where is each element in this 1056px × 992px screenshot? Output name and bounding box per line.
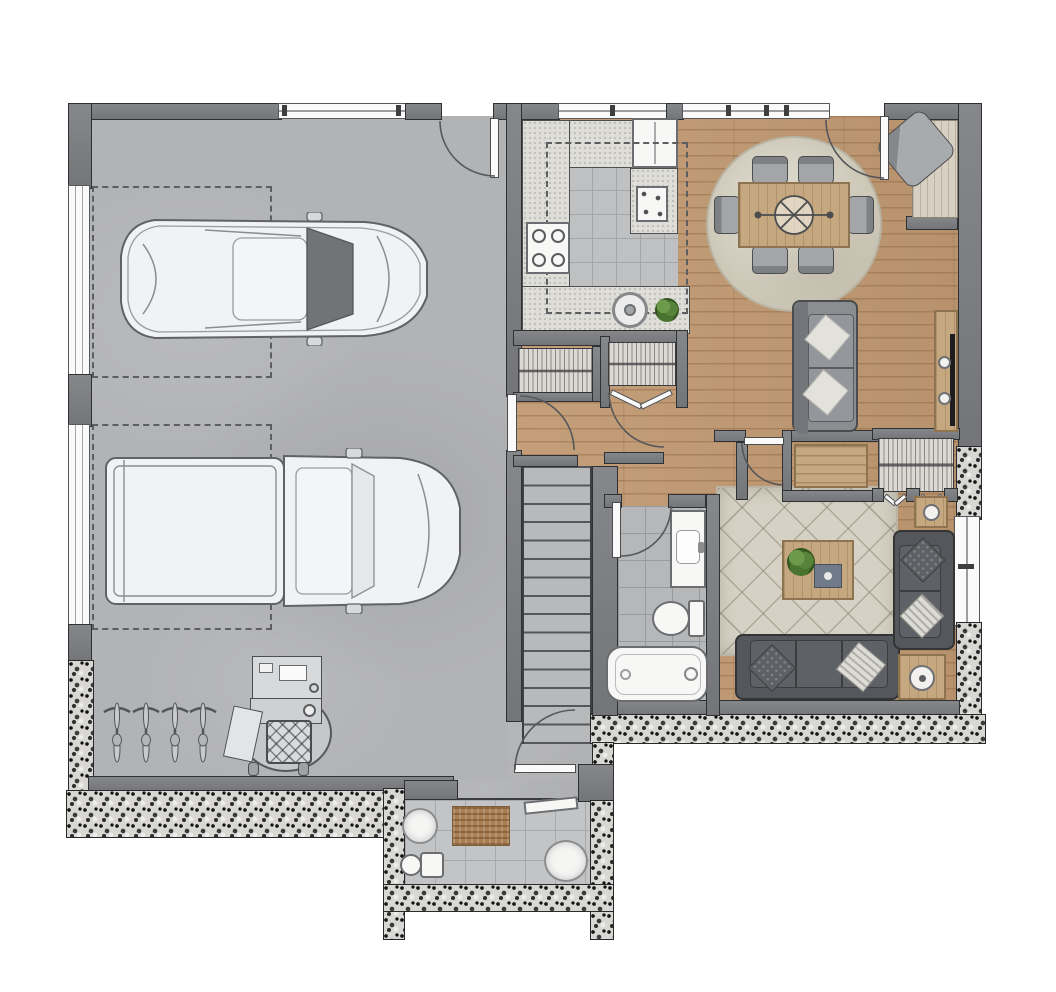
garage-bottom-stone-wall — [66, 790, 404, 838]
bottom-stone-wall — [590, 714, 986, 744]
panel-knob — [309, 683, 319, 693]
burner — [551, 253, 565, 267]
niche-dresser — [794, 444, 868, 488]
porch-bottom-stone-wall — [383, 884, 614, 912]
burner — [532, 253, 546, 267]
toilet-tank — [688, 600, 705, 637]
wardrobe-stub-1 — [872, 488, 884, 502]
bathtub-drain — [620, 669, 631, 680]
table-lamp-lower — [909, 665, 935, 691]
living-doorway-wall — [714, 430, 746, 442]
coat-closet — [518, 348, 594, 394]
porch-chair — [400, 850, 448, 882]
tv-sofa — [792, 300, 858, 432]
wall-oven — [636, 186, 668, 222]
tv-sofa-cushion-divider — [809, 367, 853, 369]
pantry-closet — [608, 342, 676, 386]
vanity-sink — [676, 530, 700, 564]
vanity-faucet — [698, 542, 704, 553]
dining-chair-west — [714, 196, 740, 234]
pantry-right-wall — [676, 330, 688, 408]
porch-chair-back — [400, 854, 422, 876]
coat-closet-bottom-wall — [513, 392, 602, 402]
staircase — [522, 466, 592, 744]
side-table-upper — [914, 496, 948, 528]
rear-entry-door-leaf — [880, 116, 889, 180]
living-sofa — [735, 634, 900, 700]
niche-bottom-wall — [782, 490, 880, 502]
tv-console — [934, 310, 958, 432]
parking-stall-outline-1 — [92, 186, 272, 378]
table-lamp-upper — [923, 504, 940, 521]
console-decor-2 — [938, 392, 951, 405]
bathroom-door-leaf — [612, 502, 621, 558]
wardrobe-closet — [878, 438, 954, 492]
porch-top-left-wall — [404, 780, 458, 800]
vanity — [670, 510, 706, 588]
left-wall-pier — [68, 374, 92, 427]
kitchen-sink — [612, 292, 648, 328]
burner — [532, 229, 546, 243]
garage-hall-door-leaf — [507, 394, 517, 452]
work-station — [228, 654, 334, 780]
top-wall-garage-right — [405, 103, 442, 120]
top-wall-kitchen-left — [493, 103, 560, 120]
floor-plan — [0, 0, 1056, 992]
left-wall-lower — [68, 624, 92, 662]
right-wall-upper — [958, 103, 982, 449]
nook-bottom-wall — [906, 216, 958, 230]
burner — [551, 229, 565, 243]
left-wall-upper — [68, 103, 92, 189]
top-wall-garage-left — [70, 103, 282, 120]
panel-detail — [279, 665, 307, 681]
hall-bottom-wall-left — [513, 455, 578, 467]
work-station-wheel — [248, 762, 259, 776]
coffee-table-tray — [814, 564, 842, 588]
bathroom-top-wall-right — [668, 494, 706, 508]
garage-house-divider-lower — [506, 450, 522, 722]
bathtub — [606, 646, 708, 702]
garage-door-2 — [68, 424, 90, 628]
dining-chair-south-1 — [752, 246, 788, 274]
dining-table — [738, 182, 850, 248]
garage-door-1 — [68, 185, 90, 378]
loveseat-cushion-divider — [900, 590, 940, 592]
tray-decor — [824, 572, 832, 580]
lamp-finial — [919, 675, 926, 682]
hall-bottom-wall-right — [604, 452, 664, 464]
right-wall-stone-upper — [956, 446, 982, 520]
living-room-window — [954, 516, 980, 626]
work-station-top-panel — [252, 656, 322, 700]
work-station-wheel — [298, 762, 309, 776]
living-room-door-leaf — [744, 437, 784, 445]
dining-chair-south-2 — [798, 246, 834, 274]
bathtub-faucet — [684, 667, 698, 681]
tv — [950, 334, 955, 426]
cooktop — [526, 222, 570, 274]
porch-corner-wall — [578, 764, 614, 802]
porch-right-stone-wall — [590, 800, 614, 940]
mid-knob — [303, 704, 316, 717]
kitchen-sink-basin — [624, 304, 636, 316]
hall-living-divider-wall — [736, 442, 748, 500]
sofa-cushion-divider — [795, 641, 797, 687]
doormat — [452, 806, 510, 846]
toilet-bowl — [652, 601, 690, 636]
parking-stall-outline-2 — [92, 424, 272, 630]
side-table-lower — [898, 654, 946, 700]
loveseat — [893, 530, 955, 650]
garage-side-door-leaf — [490, 118, 499, 178]
dining-chair-north-2 — [798, 156, 834, 184]
bathroom-right-wall — [706, 494, 720, 716]
dining-chair-north-1 — [752, 156, 788, 184]
kitchen-window — [558, 103, 668, 119]
left-wall-stone — [68, 660, 94, 794]
garage-window — [278, 103, 408, 119]
coffee-table-plant — [787, 548, 815, 576]
dining-window — [682, 103, 830, 119]
console-decor-1 — [938, 356, 951, 369]
porch-planter-1 — [402, 808, 438, 844]
work-station-basket — [266, 720, 312, 764]
porch-door-leaf — [514, 764, 576, 773]
porch-planter-2 — [544, 840, 588, 882]
dining-chair-east — [848, 196, 874, 234]
panel-detail — [259, 663, 273, 673]
kitchen-plant — [655, 298, 679, 322]
tv-sofa-back — [794, 302, 808, 434]
porch-chair-seat — [420, 852, 444, 878]
